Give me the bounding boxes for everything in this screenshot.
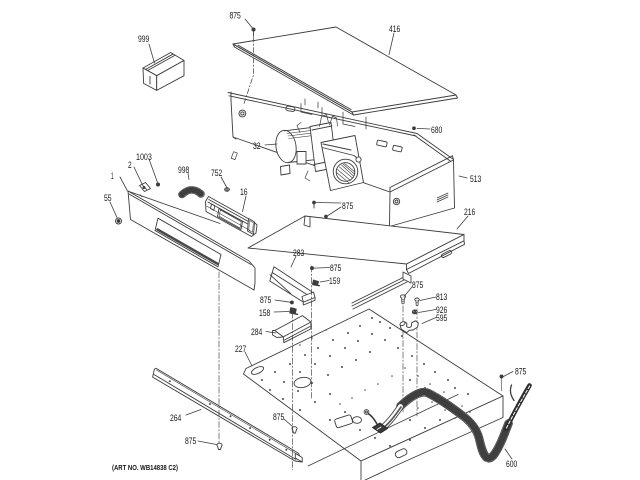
svg-text:875: 875 bbox=[330, 263, 341, 273]
svg-text:1: 1 bbox=[111, 171, 114, 181]
svg-text:227: 227 bbox=[235, 344, 246, 354]
svg-text:600: 600 bbox=[506, 459, 517, 469]
svg-text:(ART NO. WB14838 C2): (ART NO. WB14838 C2) bbox=[112, 463, 178, 472]
svg-text:416: 416 bbox=[389, 24, 400, 34]
svg-text:32: 32 bbox=[253, 141, 261, 151]
svg-text:1003: 1003 bbox=[136, 152, 152, 162]
svg-text:595: 595 bbox=[436, 313, 447, 323]
svg-text:875: 875 bbox=[230, 11, 241, 21]
svg-text:264: 264 bbox=[170, 413, 181, 423]
svg-text:55: 55 bbox=[104, 193, 112, 203]
svg-text:752: 752 bbox=[211, 168, 222, 178]
svg-text:2: 2 bbox=[128, 160, 132, 170]
svg-text:216: 216 bbox=[464, 207, 475, 217]
svg-text:998: 998 bbox=[178, 165, 189, 175]
svg-text:875: 875 bbox=[412, 280, 423, 290]
svg-text:813: 813 bbox=[436, 292, 447, 302]
svg-text:875: 875 bbox=[515, 367, 526, 377]
svg-text:875: 875 bbox=[260, 295, 271, 305]
svg-text:283: 283 bbox=[293, 248, 304, 258]
svg-text:875: 875 bbox=[342, 201, 353, 211]
svg-text:875: 875 bbox=[185, 436, 196, 446]
svg-text:284: 284 bbox=[251, 327, 262, 337]
svg-text:159: 159 bbox=[329, 276, 340, 286]
svg-text:16: 16 bbox=[240, 187, 248, 197]
svg-text:513: 513 bbox=[470, 174, 481, 184]
svg-text:158: 158 bbox=[259, 308, 270, 318]
svg-text:680: 680 bbox=[431, 125, 442, 135]
svg-text:875: 875 bbox=[273, 412, 284, 422]
svg-text:999: 999 bbox=[138, 34, 149, 44]
